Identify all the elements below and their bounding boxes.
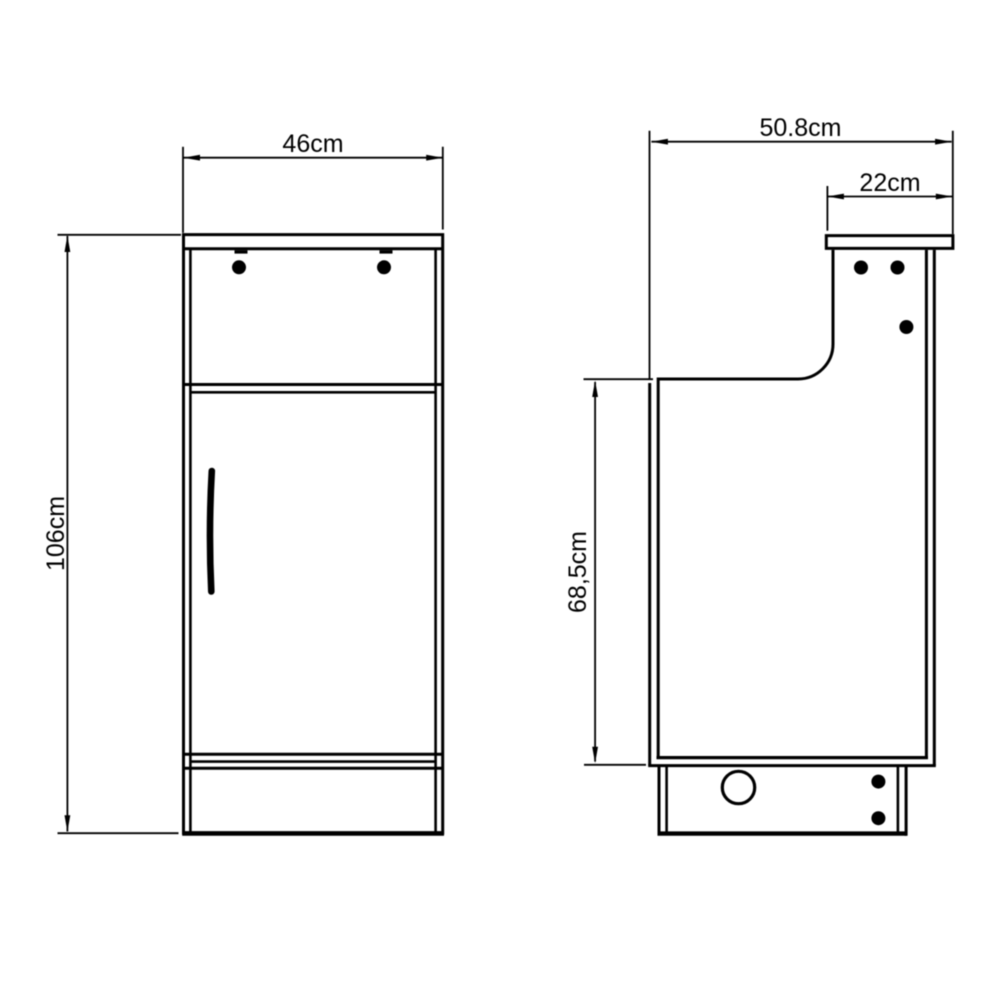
svg-text:50.8cm: 50.8cm bbox=[760, 114, 842, 142]
svg-text:46cm: 46cm bbox=[282, 130, 343, 158]
svg-text:106cm: 106cm bbox=[42, 496, 70, 571]
svg-text:22cm: 22cm bbox=[859, 169, 920, 197]
svg-text:68,5cm: 68,5cm bbox=[564, 531, 592, 613]
